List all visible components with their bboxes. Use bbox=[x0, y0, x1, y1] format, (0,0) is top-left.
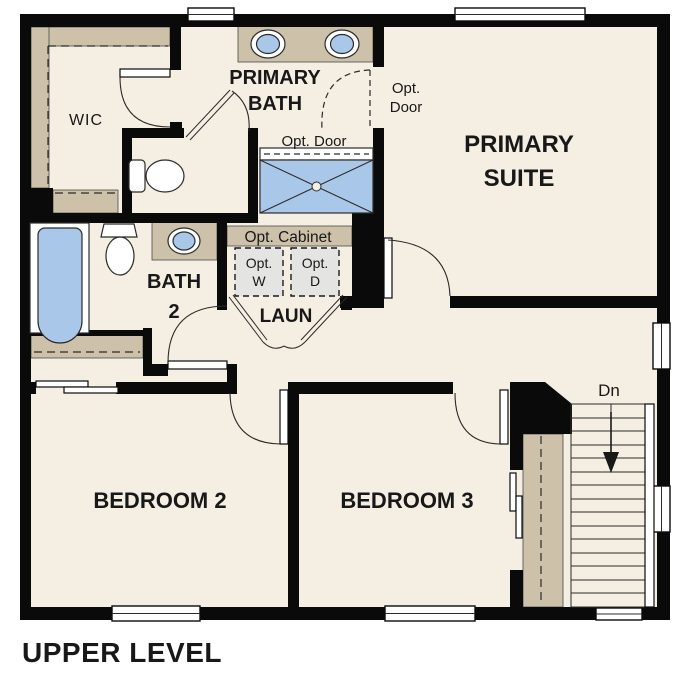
room-label-primary-bath-2: BATH bbox=[248, 93, 302, 115]
wall-wc-right bbox=[248, 128, 258, 213]
room-label-bedroom2: BEDROOM 2 bbox=[93, 488, 226, 513]
bath2-door-leaf bbox=[168, 361, 227, 369]
label-opt-washer-2: W bbox=[252, 273, 266, 289]
wall-bedroom-divider bbox=[288, 382, 299, 608]
label-opt-door-shower: Opt. Door bbox=[281, 133, 346, 150]
wall-laundry-right-block bbox=[352, 213, 384, 308]
wall-bath2-west-lower bbox=[143, 328, 152, 376]
label-stairs-down: Dn bbox=[598, 381, 620, 400]
wic-door-leaf bbox=[120, 69, 170, 77]
wic-left-shelf bbox=[31, 27, 49, 188]
room-label-bath2-2: 2 bbox=[168, 301, 179, 323]
stair-handrail bbox=[645, 404, 654, 607]
wall-suite-west-upper bbox=[373, 14, 384, 67]
wall-bedroom3-top bbox=[288, 382, 453, 394]
room-label-wic: WIC bbox=[69, 112, 103, 129]
page-title: UPPER LEVEL bbox=[22, 637, 222, 668]
room-label-bedroom3: BEDROOM 3 bbox=[340, 488, 473, 513]
suite-door-leaf bbox=[384, 238, 392, 298]
room-label-primary-bath-1: PRIMARY bbox=[229, 67, 321, 89]
wall-bedroom2-top bbox=[116, 382, 230, 394]
label-opt-door-suite-1: Opt. bbox=[392, 80, 420, 97]
bedroom2-door-leaf bbox=[280, 390, 288, 444]
room-label-laundry: LAUN bbox=[260, 306, 313, 327]
label-opt-dryer-2: D bbox=[310, 273, 320, 289]
floor-field bbox=[20, 14, 670, 620]
primary-sink-left-icon bbox=[251, 30, 285, 58]
wall-wic-corner bbox=[28, 188, 53, 213]
primary-sink-right-icon bbox=[325, 30, 359, 58]
label-opt-dryer-1: Opt. bbox=[302, 255, 328, 271]
wall-bedroom2-top-stub bbox=[20, 382, 36, 394]
room-label-bath2-1: BATH bbox=[147, 271, 201, 293]
shower-icon bbox=[260, 160, 373, 213]
bedroom3-door-leaf bbox=[500, 390, 508, 444]
wall-wic-bath-divider bbox=[170, 14, 181, 70]
primary-toilet-icon bbox=[129, 160, 184, 192]
wall-suite-south-right bbox=[450, 296, 658, 308]
wall-laundry-left bbox=[217, 213, 227, 310]
wall-bath2-south-left bbox=[152, 364, 168, 376]
label-opt-door-suite-2: Door bbox=[390, 99, 423, 116]
label-opt-washer-1: Opt. bbox=[246, 255, 272, 271]
label-opt-cabinet: Opt. Cabinet bbox=[244, 229, 332, 246]
wall-bedroom3-closet-lower bbox=[510, 570, 523, 607]
tub-icon bbox=[30, 223, 89, 343]
wall-laundry-right-stub bbox=[341, 298, 352, 310]
wic-top-shelf bbox=[31, 27, 170, 46]
wall-bedroom3-closet-upper bbox=[510, 382, 523, 470]
room-label-primary-suite-1: PRIMARY bbox=[464, 131, 574, 158]
wall-exterior-left bbox=[20, 14, 31, 620]
floor-plan-canvas: WIC PRIMARY BATH PRIMARY SUITE Opt. Door… bbox=[0, 0, 687, 687]
bedroom3-closet-floor bbox=[523, 434, 563, 607]
room-label-primary-suite-2: SUITE bbox=[484, 165, 555, 192]
bath2-sink-icon bbox=[168, 228, 200, 254]
